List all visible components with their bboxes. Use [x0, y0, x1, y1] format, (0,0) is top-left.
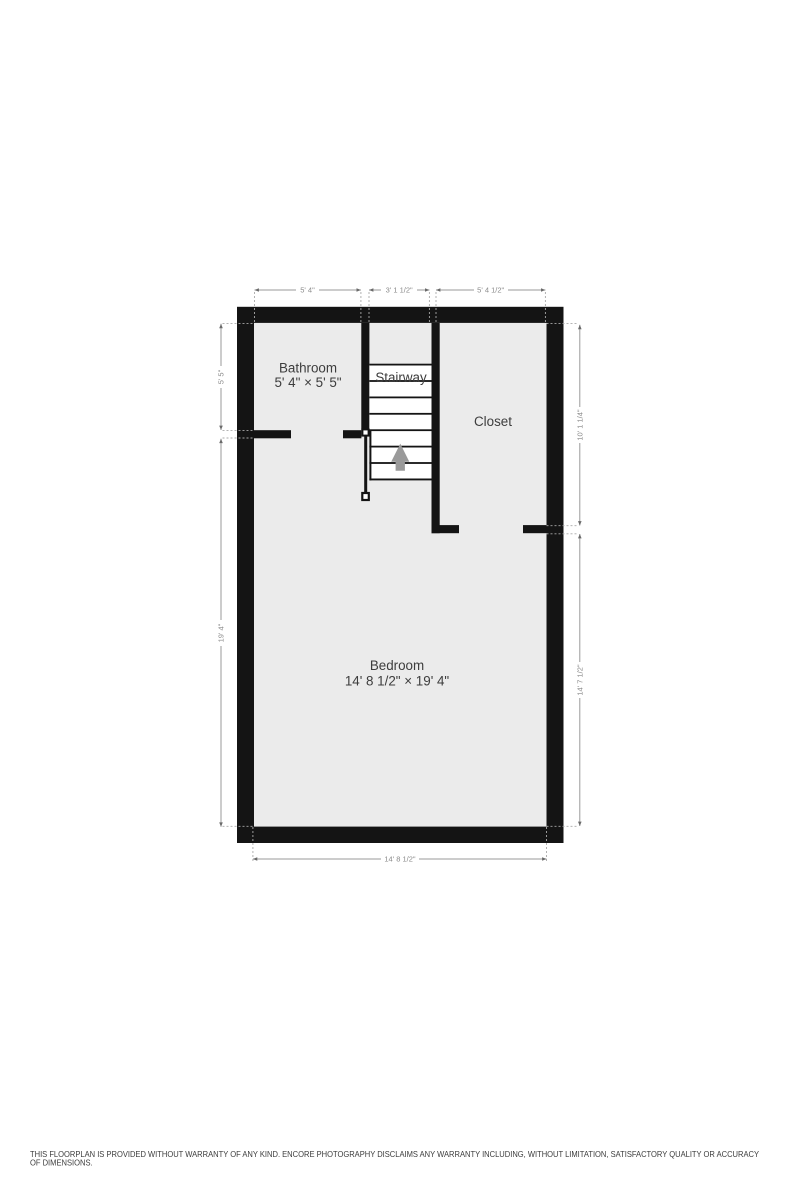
svg-text:5' 4" × 5' 5": 5' 4" × 5' 5": [274, 375, 341, 390]
svg-text:14' 7 1/2": 14' 7 1/2": [575, 664, 584, 696]
svg-text:OF DIMENSIONS.: OF DIMENSIONS.: [30, 1159, 93, 1168]
svg-text:10' 1 1/4": 10' 1 1/4": [575, 409, 584, 441]
svg-text:5' 4 1/2": 5' 4 1/2": [477, 286, 504, 295]
svg-text:5' 5": 5' 5": [217, 369, 226, 384]
svg-text:Stairway: Stairway: [375, 370, 427, 385]
svg-text:Closet: Closet: [474, 414, 512, 429]
svg-text:THIS FLOORPLAN IS PROVIDED WIT: THIS FLOORPLAN IS PROVIDED WITHOUT WARRA…: [30, 1150, 759, 1159]
svg-text:14' 8 1/2" × 19' 4": 14' 8 1/2" × 19' 4": [345, 673, 450, 688]
svg-text:19' 4": 19' 4": [217, 623, 226, 642]
svg-text:Bedroom: Bedroom: [370, 658, 424, 673]
svg-text:14' 8 1/2": 14' 8 1/2": [384, 855, 416, 864]
svg-text:5' 4": 5' 4": [300, 286, 315, 295]
svg-text:Bathroom: Bathroom: [279, 361, 337, 376]
svg-text:3' 1 1/2": 3' 1 1/2": [386, 286, 413, 295]
